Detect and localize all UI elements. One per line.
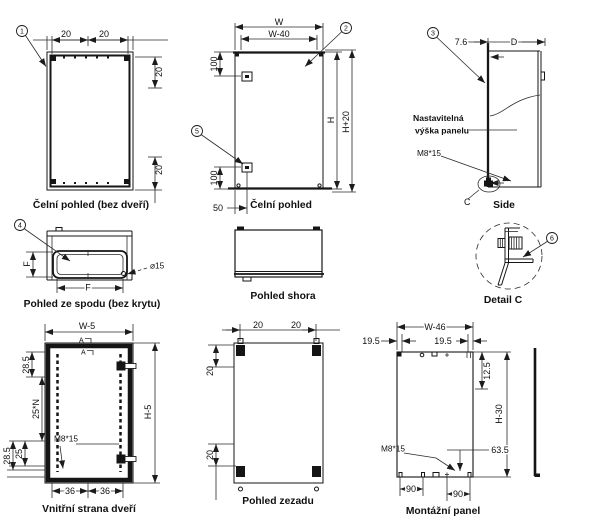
dim-label: F <box>85 283 91 293</box>
view-caption: Side <box>493 200 515 211</box>
dim-label: 25*N <box>31 399 41 419</box>
panel-outline <box>397 352 473 477</box>
section-a-label: A <box>81 350 86 357</box>
callout-number: 5 <box>195 129 199 136</box>
view-caption: Čelní pohled <box>250 198 312 211</box>
dim-label: H+20 <box>341 111 351 133</box>
dim-label: H-5 <box>143 405 153 420</box>
section-a-label: A <box>79 338 84 345</box>
dim-label: 90 <box>453 489 463 499</box>
dim-label: W-5 <box>79 321 95 331</box>
view-front: W W-40 100 100 50 H H+20 2 5 Čelní pohle… <box>192 17 357 214</box>
detail-ref-label: C <box>464 197 471 207</box>
door-hinges <box>242 72 252 172</box>
corner-fixings <box>51 56 129 184</box>
bracket-detail <box>498 228 533 285</box>
callout-number: 3 <box>431 31 435 38</box>
dimension-lines <box>468 38 545 46</box>
panel-height-label: výška panelu <box>415 126 469 136</box>
vent-holes <box>63 57 109 185</box>
dim-label: 20 <box>154 165 164 175</box>
dim-label: 36 <box>100 486 110 496</box>
view-caption: Vnitřní strana dveří <box>42 504 137 515</box>
bolt-label: M8*15 <box>54 434 78 444</box>
dim-label: 7.6 <box>455 37 468 47</box>
bolt-leader <box>441 156 511 181</box>
panel-side-profile <box>535 348 541 477</box>
panel-bolt <box>484 181 493 187</box>
dim-label: 19.5 <box>434 336 452 346</box>
dim-label: 28.5 <box>2 447 12 465</box>
view-caption: Pohled ze spodu (bez krytu) <box>24 299 161 310</box>
callout-2: 2 <box>305 23 352 67</box>
dim-label: F <box>22 261 32 267</box>
view-caption: Pohled shora <box>250 291 315 302</box>
dimension-lines <box>33 36 168 203</box>
body-outline <box>235 230 322 277</box>
dim-label: 25 <box>14 449 24 459</box>
view-side: 7.6 D Nastavitelná výška panelu M8*15 C … <box>413 28 545 212</box>
dim-label: 90 <box>406 484 416 494</box>
view-caption: Čelní pohled (bez dveří) <box>33 198 149 211</box>
callout-1: 1 <box>17 26 47 67</box>
dim-label: 20 <box>205 366 215 376</box>
gland-opening <box>53 250 127 279</box>
view-bottom-no-cover: F F ⌀15 4 Pohled ze spodu (bez krytu) <box>15 220 165 311</box>
body-outline <box>234 343 323 483</box>
adjustment-curve <box>490 95 540 116</box>
dim-label: 20 <box>154 67 164 77</box>
callout-number: 4 <box>18 223 22 230</box>
view-caption: Detail C <box>484 295 523 306</box>
view-detail-c: 6 Detail C <box>476 223 558 306</box>
panel-bolt-head <box>486 178 491 181</box>
enclosure-inner-frame <box>51 56 130 187</box>
view-front-no-door: 20 20 20 20 1 Čelní pohled (bez dveří) <box>17 26 169 212</box>
view-caption: Montážní panel <box>406 506 481 517</box>
dim-label: 20 <box>253 320 263 330</box>
dim-label: 20 <box>291 320 301 330</box>
dim-label: 100 <box>209 56 219 71</box>
view-door-inner: A A M8*15 W-5 H-5 28.5 25*N <box>2 321 160 515</box>
hinge-knuckle <box>313 227 320 231</box>
dim-label: 100 <box>209 170 219 185</box>
lock-tab <box>243 277 251 281</box>
hinge-knuckle <box>237 227 244 231</box>
dim-label: 36 <box>65 486 75 496</box>
dim-label: 20 <box>99 29 109 39</box>
dim-label: 50 <box>213 203 223 213</box>
view-rear: 20 20 20 20 Pohled zezadu <box>205 320 340 507</box>
bolt-label: M8*15 <box>417 148 441 158</box>
dim-label: H-30 <box>494 404 504 424</box>
dim-label: W <box>275 17 284 27</box>
dim-label: W-40 <box>268 29 289 39</box>
callout-number: 1 <box>20 29 24 36</box>
callout-number: 2 <box>344 26 348 33</box>
callout-4: 4 <box>15 220 71 262</box>
mounting-brackets <box>236 339 321 492</box>
hinge-tab <box>541 72 545 80</box>
view-top: Pohled shora <box>234 227 324 303</box>
dim-label: 28.5 <box>21 356 31 374</box>
bolt-label: M8*15 <box>381 444 405 454</box>
bolt-leader <box>60 446 63 469</box>
technical-drawing-page: 20 20 20 20 1 Čelní pohled (bez dveří) <box>0 0 600 525</box>
callout-3: 3 <box>428 28 486 84</box>
dim-label: 20 <box>61 29 71 39</box>
dim-label: W-46 <box>424 322 445 332</box>
callout-number: 6 <box>550 236 554 243</box>
dim-label: 20 <box>205 450 215 460</box>
hole-dim-label: ⌀15 <box>150 261 165 271</box>
dim-label: H <box>326 117 336 124</box>
dim-label: 63.5 <box>491 445 509 455</box>
dim-label: 19.5 <box>362 336 380 346</box>
dim-label: 12.5 <box>482 362 492 380</box>
view-mounting-panel: W-46 19.5 19.5 12.5 H-30 63.5 M8*15 90 9… <box>362 322 540 517</box>
enclosure-drawing: 20 20 20 20 1 Čelní pohled (bez dveří) <box>0 0 600 525</box>
dim-label: D <box>511 37 518 47</box>
enclosure-outline <box>47 52 133 190</box>
view-caption: Pohled zezadu <box>242 496 314 507</box>
panel-height-label: Nastavitelná <box>413 113 464 123</box>
